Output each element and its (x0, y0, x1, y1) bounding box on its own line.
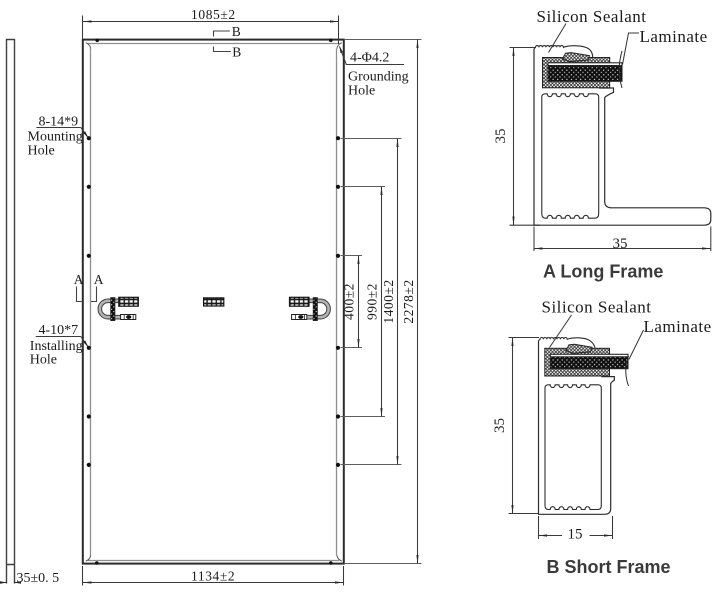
svg-text:4-Φ4.2: 4-Φ4.2 (350, 51, 389, 66)
svg-text:A: A (74, 272, 84, 287)
svg-text:35: 35 (493, 129, 509, 144)
svg-text:Hole: Hole (28, 144, 55, 159)
svg-text:8-14*9: 8-14*9 (39, 115, 79, 130)
svg-text:Silicon Sealant: Silicon Sealant (542, 298, 652, 317)
svg-text:B: B (232, 44, 241, 59)
svg-text:2278±2: 2278±2 (401, 279, 416, 323)
svg-text:15: 15 (568, 527, 583, 543)
svg-text:1400±2: 1400±2 (381, 279, 396, 323)
svg-text:Laminate: Laminate (640, 27, 708, 46)
svg-text:35±0. 5: 35±0. 5 (17, 571, 60, 586)
svg-text:990±2: 990±2 (365, 283, 380, 320)
svg-text:4-10*7: 4-10*7 (39, 323, 79, 338)
svg-text:Laminate: Laminate (644, 317, 712, 336)
svg-text:B: B (232, 24, 241, 39)
svg-text:35: 35 (613, 236, 628, 252)
svg-text:1134±2: 1134±2 (191, 569, 235, 584)
svg-text:Hole: Hole (348, 84, 375, 99)
svg-text:400±2: 400±2 (342, 283, 357, 320)
svg-text:Hole: Hole (30, 353, 57, 368)
svg-text:35: 35 (492, 418, 508, 433)
svg-text:1085±2: 1085±2 (191, 7, 236, 22)
svg-text:A: A (94, 272, 104, 287)
svg-text:Grounding: Grounding (348, 70, 409, 85)
svg-text:B Short Frame: B Short Frame (547, 557, 671, 577)
svg-text:Silicon Sealant: Silicon Sealant (537, 7, 647, 26)
svg-text:A Long Frame: A Long Frame (543, 262, 663, 282)
svg-text:Mounting: Mounting (28, 130, 83, 145)
